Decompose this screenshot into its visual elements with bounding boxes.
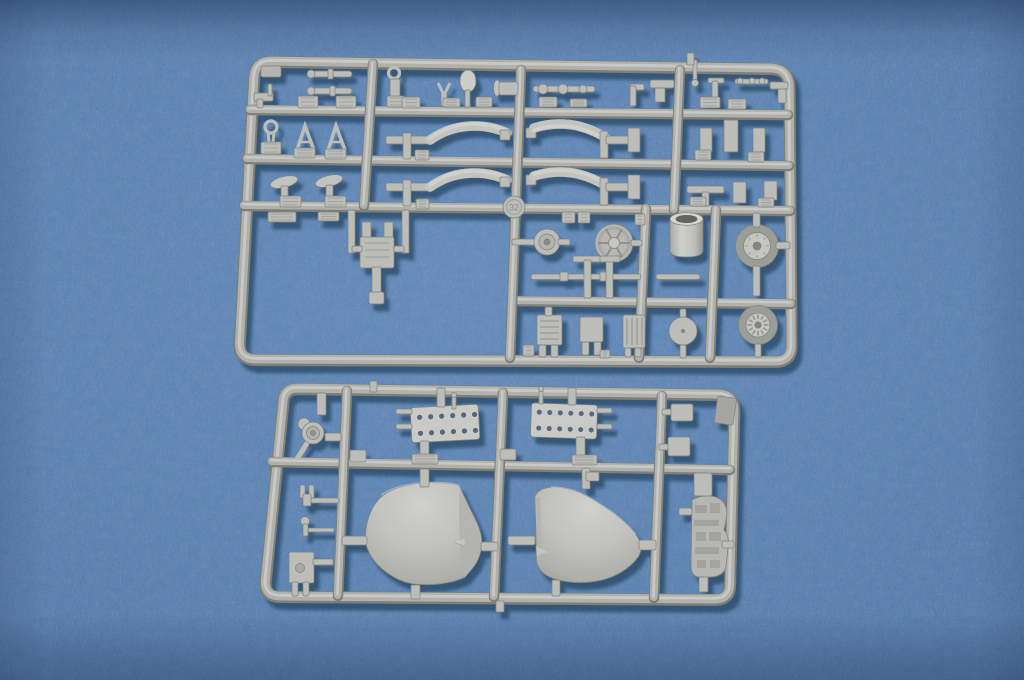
svg-text:32: 32 <box>509 203 519 213</box>
